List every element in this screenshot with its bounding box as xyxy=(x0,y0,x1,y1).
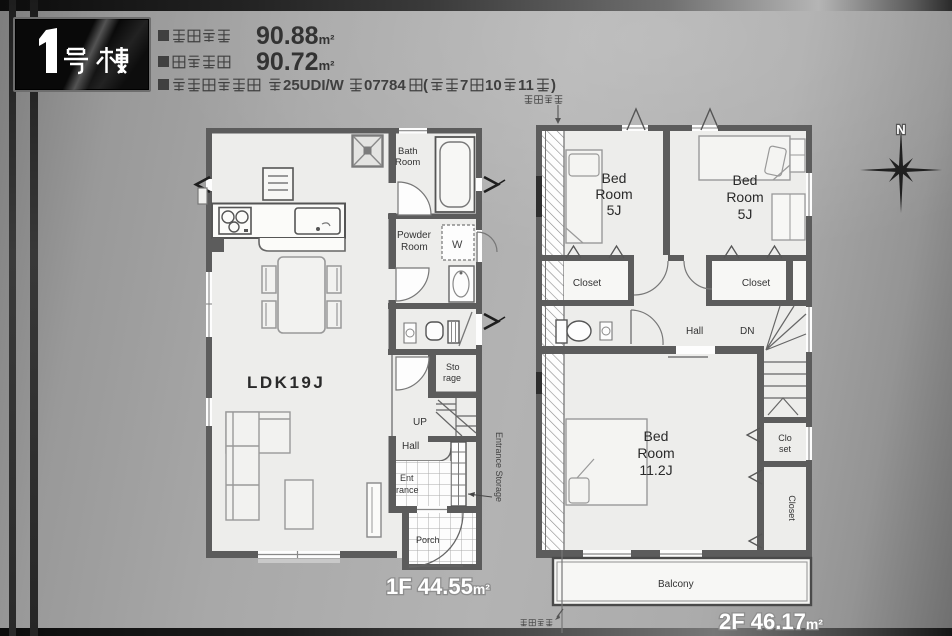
svg-text:Closet: Closet xyxy=(573,278,602,289)
svg-text:Powder: Powder xyxy=(397,230,432,241)
svg-text:Room: Room xyxy=(401,242,428,253)
svg-text:Bath: Bath xyxy=(398,146,418,157)
svg-text:LDK19J: LDK19J xyxy=(247,373,325,392)
svg-text:5J: 5J xyxy=(738,206,753,222)
svg-text:Closet: Closet xyxy=(742,278,771,289)
svg-text:Bed: Bed xyxy=(644,428,669,444)
svg-text:Bed: Bed xyxy=(733,172,758,188)
svg-text:2F 46.17m²: 2F 46.17m² xyxy=(719,609,823,634)
svg-text:UP: UP xyxy=(413,417,427,428)
svg-text:rance: rance xyxy=(396,485,419,495)
svg-text:Bed: Bed xyxy=(602,170,627,186)
svg-text:Hall: Hall xyxy=(402,441,419,452)
svg-text:Room: Room xyxy=(395,157,420,168)
svg-text:5J: 5J xyxy=(607,202,622,218)
svg-text:11.2J: 11.2J xyxy=(639,462,672,478)
svg-text:Porch: Porch xyxy=(416,535,440,545)
svg-text:Closet: Closet xyxy=(787,495,797,521)
svg-text:W: W xyxy=(452,239,463,251)
svg-text:Entrance Storage: Entrance Storage xyxy=(494,432,504,502)
svg-text:N: N xyxy=(896,122,905,137)
svg-text:Ent: Ent xyxy=(400,473,414,483)
svg-text:Clo: Clo xyxy=(778,433,792,443)
svg-text:DN: DN xyxy=(740,326,754,337)
svg-text:rage: rage xyxy=(443,373,461,383)
svg-text:1F 44.55m²: 1F 44.55m² xyxy=(386,574,490,599)
svg-text:Balcony: Balcony xyxy=(658,579,694,590)
svg-text:Room: Room xyxy=(595,186,632,202)
svg-text:set: set xyxy=(779,444,792,454)
svg-text:Room: Room xyxy=(637,445,674,461)
svg-text:Hall: Hall xyxy=(686,326,703,337)
svg-text:Sto: Sto xyxy=(446,362,460,372)
svg-text:Room: Room xyxy=(726,189,763,205)
